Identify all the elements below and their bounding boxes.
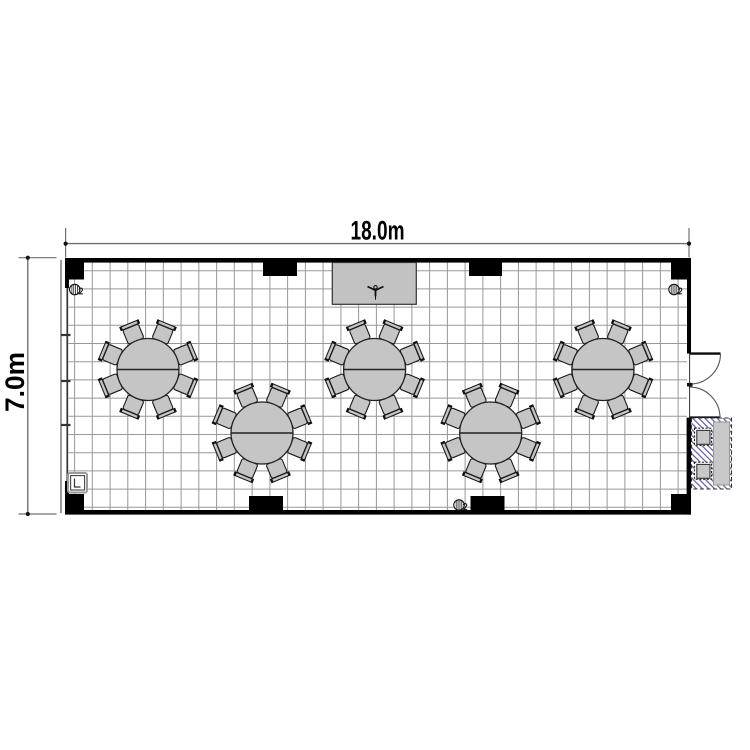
svg-text:18.0m: 18.0m	[351, 216, 405, 246]
svg-text:7.0m: 7.0m	[0, 352, 30, 412]
